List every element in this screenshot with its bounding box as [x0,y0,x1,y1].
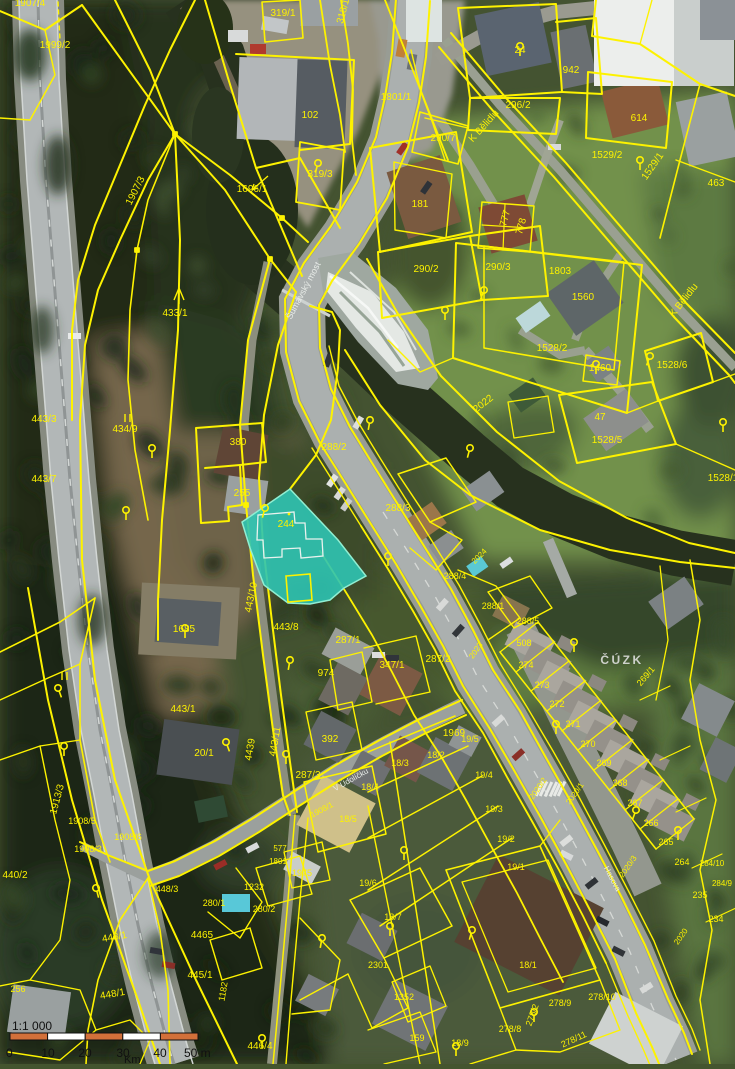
svg-text:18/4: 18/4 [361,782,379,792]
svg-text:19/6: 19/6 [359,878,377,888]
svg-text:267: 267 [627,798,642,808]
svg-text:244: 244 [278,519,295,530]
svg-text:0: 0 [6,1046,13,1060]
svg-text:296/2: 296/2 [505,100,530,111]
svg-text:577: 577 [273,844,287,853]
svg-text:278/8: 278/8 [499,1024,522,1034]
svg-text:270: 270 [580,739,595,749]
svg-text:288/2: 288/2 [321,442,346,453]
svg-text:1528/5: 1528/5 [592,435,623,446]
svg-text:102: 102 [302,110,319,121]
svg-text:1529/2: 1529/2 [592,150,623,161]
svg-text:974: 974 [318,668,335,679]
svg-text:1908/6: 1908/6 [114,832,142,842]
svg-text:1801: 1801 [269,857,287,866]
svg-text:287/1: 287/1 [335,635,360,646]
svg-text:1803: 1803 [549,266,572,277]
svg-text:256: 256 [10,984,25,994]
svg-text:268: 268 [612,778,627,788]
svg-text:288/4: 288/4 [444,571,467,581]
svg-text:1528/1: 1528/1 [708,473,735,484]
svg-text:347/1: 347/1 [379,660,404,671]
svg-text:274: 274 [518,660,533,670]
svg-text:19/4: 19/4 [475,770,493,780]
svg-text:273: 273 [534,680,549,690]
svg-text:1908/5: 1908/5 [68,816,96,826]
svg-text:1801/1: 1801/1 [381,92,412,103]
svg-text:1528/2: 1528/2 [537,343,568,354]
svg-text:1560: 1560 [572,292,595,303]
svg-text:280/1: 280/1 [203,898,226,908]
svg-text:19/1: 19/1 [507,862,525,872]
svg-text:18/1: 18/1 [519,960,537,970]
svg-text:47: 47 [594,412,606,423]
svg-text:942: 942 [563,65,580,76]
svg-text:287/3: 287/3 [295,770,320,781]
svg-text:284/10: 284/10 [700,859,725,868]
svg-text:272: 272 [549,699,564,709]
svg-text:19/2: 19/2 [497,834,515,844]
svg-text:1528/6: 1528/6 [657,360,688,371]
svg-text:287/2: 287/2 [425,654,450,665]
svg-text:18/5: 18/5 [339,814,357,824]
svg-text:440/2: 440/2 [2,870,27,881]
svg-text:278/9: 278/9 [549,998,572,1008]
svg-text:18/9: 18/9 [451,1038,469,1048]
svg-text:463: 463 [708,178,725,189]
svg-text:18/3: 18/3 [391,758,409,768]
svg-text:392: 392 [322,734,339,745]
svg-text:255: 255 [234,488,251,499]
svg-text:18/7: 18/7 [384,912,402,922]
svg-text:50 m: 50 m [184,1046,211,1060]
svg-text:ČÚZK: ČÚZK [600,652,643,667]
svg-text:1696/1: 1696/1 [237,184,268,195]
svg-text:266: 266 [643,818,658,828]
svg-text:280/2: 280/2 [253,904,276,914]
svg-text:2301: 2301 [368,960,388,970]
svg-text:614: 614 [631,113,648,124]
svg-text:288/5: 288/5 [517,616,540,626]
svg-text:1975: 1975 [292,868,312,878]
svg-text:159: 159 [409,1033,424,1043]
svg-text:288/1: 288/1 [482,601,505,611]
svg-text:443/3: 443/3 [31,414,56,425]
svg-text:1460: 1460 [589,363,612,374]
svg-text:443/1: 443/1 [170,704,195,715]
svg-text:1999/2: 1999/2 [40,40,71,51]
svg-text:4465: 4465 [191,930,214,941]
svg-text:278/10: 278/10 [588,992,616,1002]
svg-text:448/3: 448/3 [156,884,179,894]
svg-text:433/1: 433/1 [162,308,187,319]
svg-text:19/3: 19/3 [485,804,503,814]
svg-text:1908/3: 1908/3 [74,844,102,854]
svg-text:443/7: 443/7 [31,474,56,485]
svg-text:288/3: 288/3 [385,503,410,514]
svg-text:1907/4: 1907/4 [15,0,46,9]
svg-text:269: 269 [596,758,611,768]
svg-text:20: 20 [78,1046,92,1060]
svg-text:445/1: 445/1 [187,970,212,981]
svg-text:235: 235 [692,890,707,900]
svg-text:181: 181 [412,199,429,210]
svg-text:234: 234 [708,914,723,924]
svg-text:290/3: 290/3 [485,262,510,273]
svg-text:290/7: 290/7 [430,133,455,144]
svg-text:1685: 1685 [173,624,196,635]
svg-text:319/1: 319/1 [270,8,295,19]
svg-text:1352: 1352 [394,992,414,1002]
svg-text:10: 10 [41,1046,55,1060]
svg-text:271: 271 [565,719,580,729]
svg-text:380: 380 [230,437,247,448]
svg-text:1:1 000: 1:1 000 [12,1019,52,1033]
svg-text:265: 265 [658,837,673,847]
svg-text:Km: Km [124,1054,141,1064]
svg-text:508: 508 [516,638,531,648]
svg-text:40: 40 [153,1046,167,1060]
svg-text:19/5: 19/5 [461,734,479,744]
svg-text:434/9: 434/9 [112,424,137,435]
svg-text:290/2: 290/2 [413,264,438,275]
svg-text:1232: 1232 [244,882,264,892]
svg-text:18/2: 18/2 [427,750,445,760]
svg-text:319/3: 319/3 [307,169,332,180]
svg-text:264: 264 [674,857,689,867]
svg-text:24: 24 [514,45,526,56]
svg-text:20/1: 20/1 [194,748,214,759]
svg-text:284/9: 284/9 [712,879,733,888]
svg-text:443/8: 443/8 [273,622,298,633]
svg-text:446/4: 446/4 [247,1041,272,1052]
